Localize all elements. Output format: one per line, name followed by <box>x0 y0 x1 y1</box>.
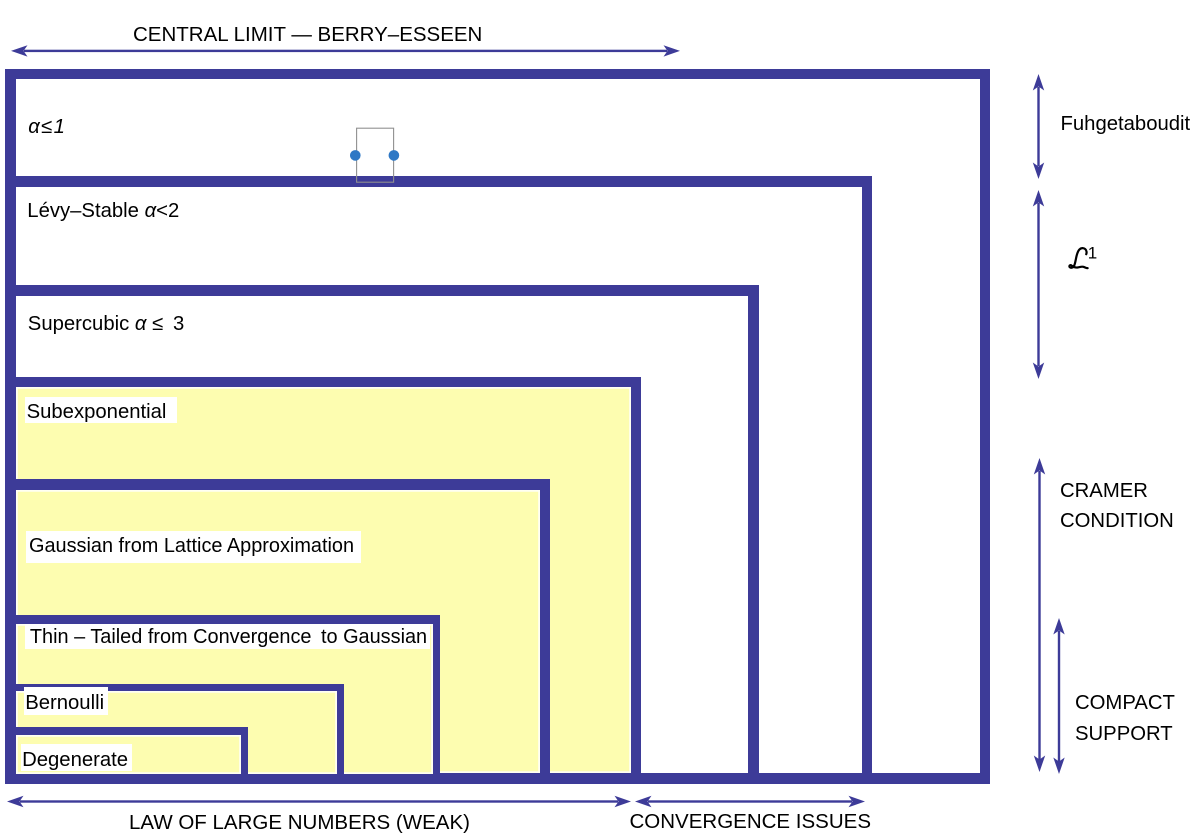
svg-text:1: 1 <box>1088 244 1097 263</box>
